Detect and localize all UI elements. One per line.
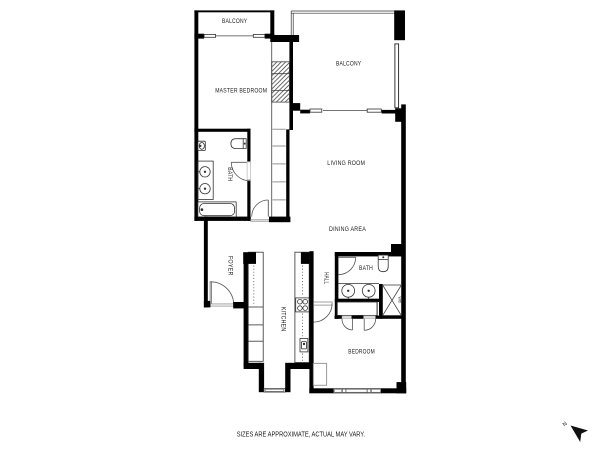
svg-text:KITCHEN: KITCHEN: [279, 307, 286, 332]
svg-text:BEDROOM: BEDROOM: [348, 349, 375, 356]
svg-text:BATH: BATH: [359, 265, 373, 272]
svg-text:LIVING ROOM: LIVING ROOM: [327, 160, 365, 167]
svg-text:HALL: HALL: [323, 272, 330, 284]
svg-text:SIZES ARE APPROXIMATE, ACTUAL: SIZES ARE APPROXIMATE, ACTUAL MAY VARY.: [237, 429, 365, 438]
svg-text:BALCONY: BALCONY: [222, 18, 248, 25]
svg-text:W/D: W/D: [398, 297, 402, 304]
svg-text:BALCONY: BALCONY: [336, 61, 362, 68]
svg-text:BATH: BATH: [226, 167, 233, 181]
svg-text:MASTER BEDROOM: MASTER BEDROOM: [215, 88, 267, 95]
svg-text:DINING AREA: DINING AREA: [329, 226, 366, 233]
svg-text:FOYER: FOYER: [226, 256, 233, 276]
